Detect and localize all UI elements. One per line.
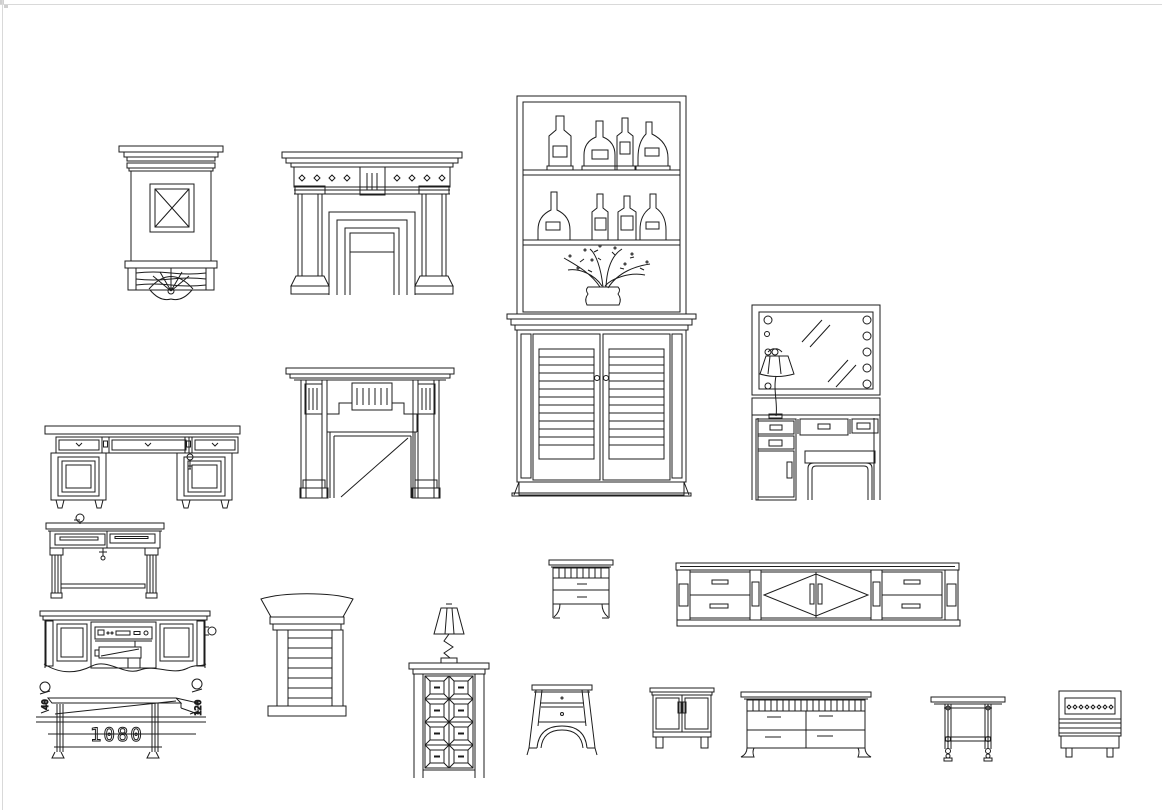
table-lamp-icon [434, 604, 464, 663]
mirror-bulbs [764, 316, 871, 389]
potted-plant-icon [564, 245, 650, 305]
fireplace-mantel-classic-icon [282, 152, 462, 295]
left-dimension-text: 40 [41, 699, 51, 710]
louvered-pedestal-icon [261, 594, 353, 716]
nightstand-two-drawer-icon [549, 560, 613, 618]
stereo-icon [95, 627, 152, 668]
panel-chest-icon [409, 604, 489, 778]
cad-sheet: 40 120 1080 [0, 0, 1162, 810]
turned-leg-table-icon [931, 697, 1005, 761]
stool-icon [805, 451, 875, 500]
cad-drawing-canvas: 40 120 1080 [0, 0, 1162, 810]
mantel-cabinet-x-icon [119, 146, 223, 300]
table-width-dimension-text: 1080 [90, 724, 144, 746]
fireplace-mantel-stepped-icon [286, 368, 454, 498]
vented-cabinet-icon [1059, 691, 1121, 757]
bottle-icon [538, 192, 666, 240]
bar-display-cabinet-icon [507, 96, 696, 496]
dimensioned-table-icon: 40 120 1080 [36, 679, 206, 758]
media-sideboard-icon [40, 611, 216, 672]
tv-console-icon [676, 563, 960, 626]
bottle-icon [547, 116, 670, 170]
nightstand-arched-icon [527, 685, 597, 755]
two-door-cabinet-icon [650, 688, 714, 748]
table-lamp-icon [760, 349, 794, 418]
four-drawer-sideboard-icon [741, 692, 871, 757]
vanity-mirror-icon [752, 305, 880, 500]
writing-desk-icon [45, 426, 240, 508]
console-table-icon [46, 514, 164, 598]
